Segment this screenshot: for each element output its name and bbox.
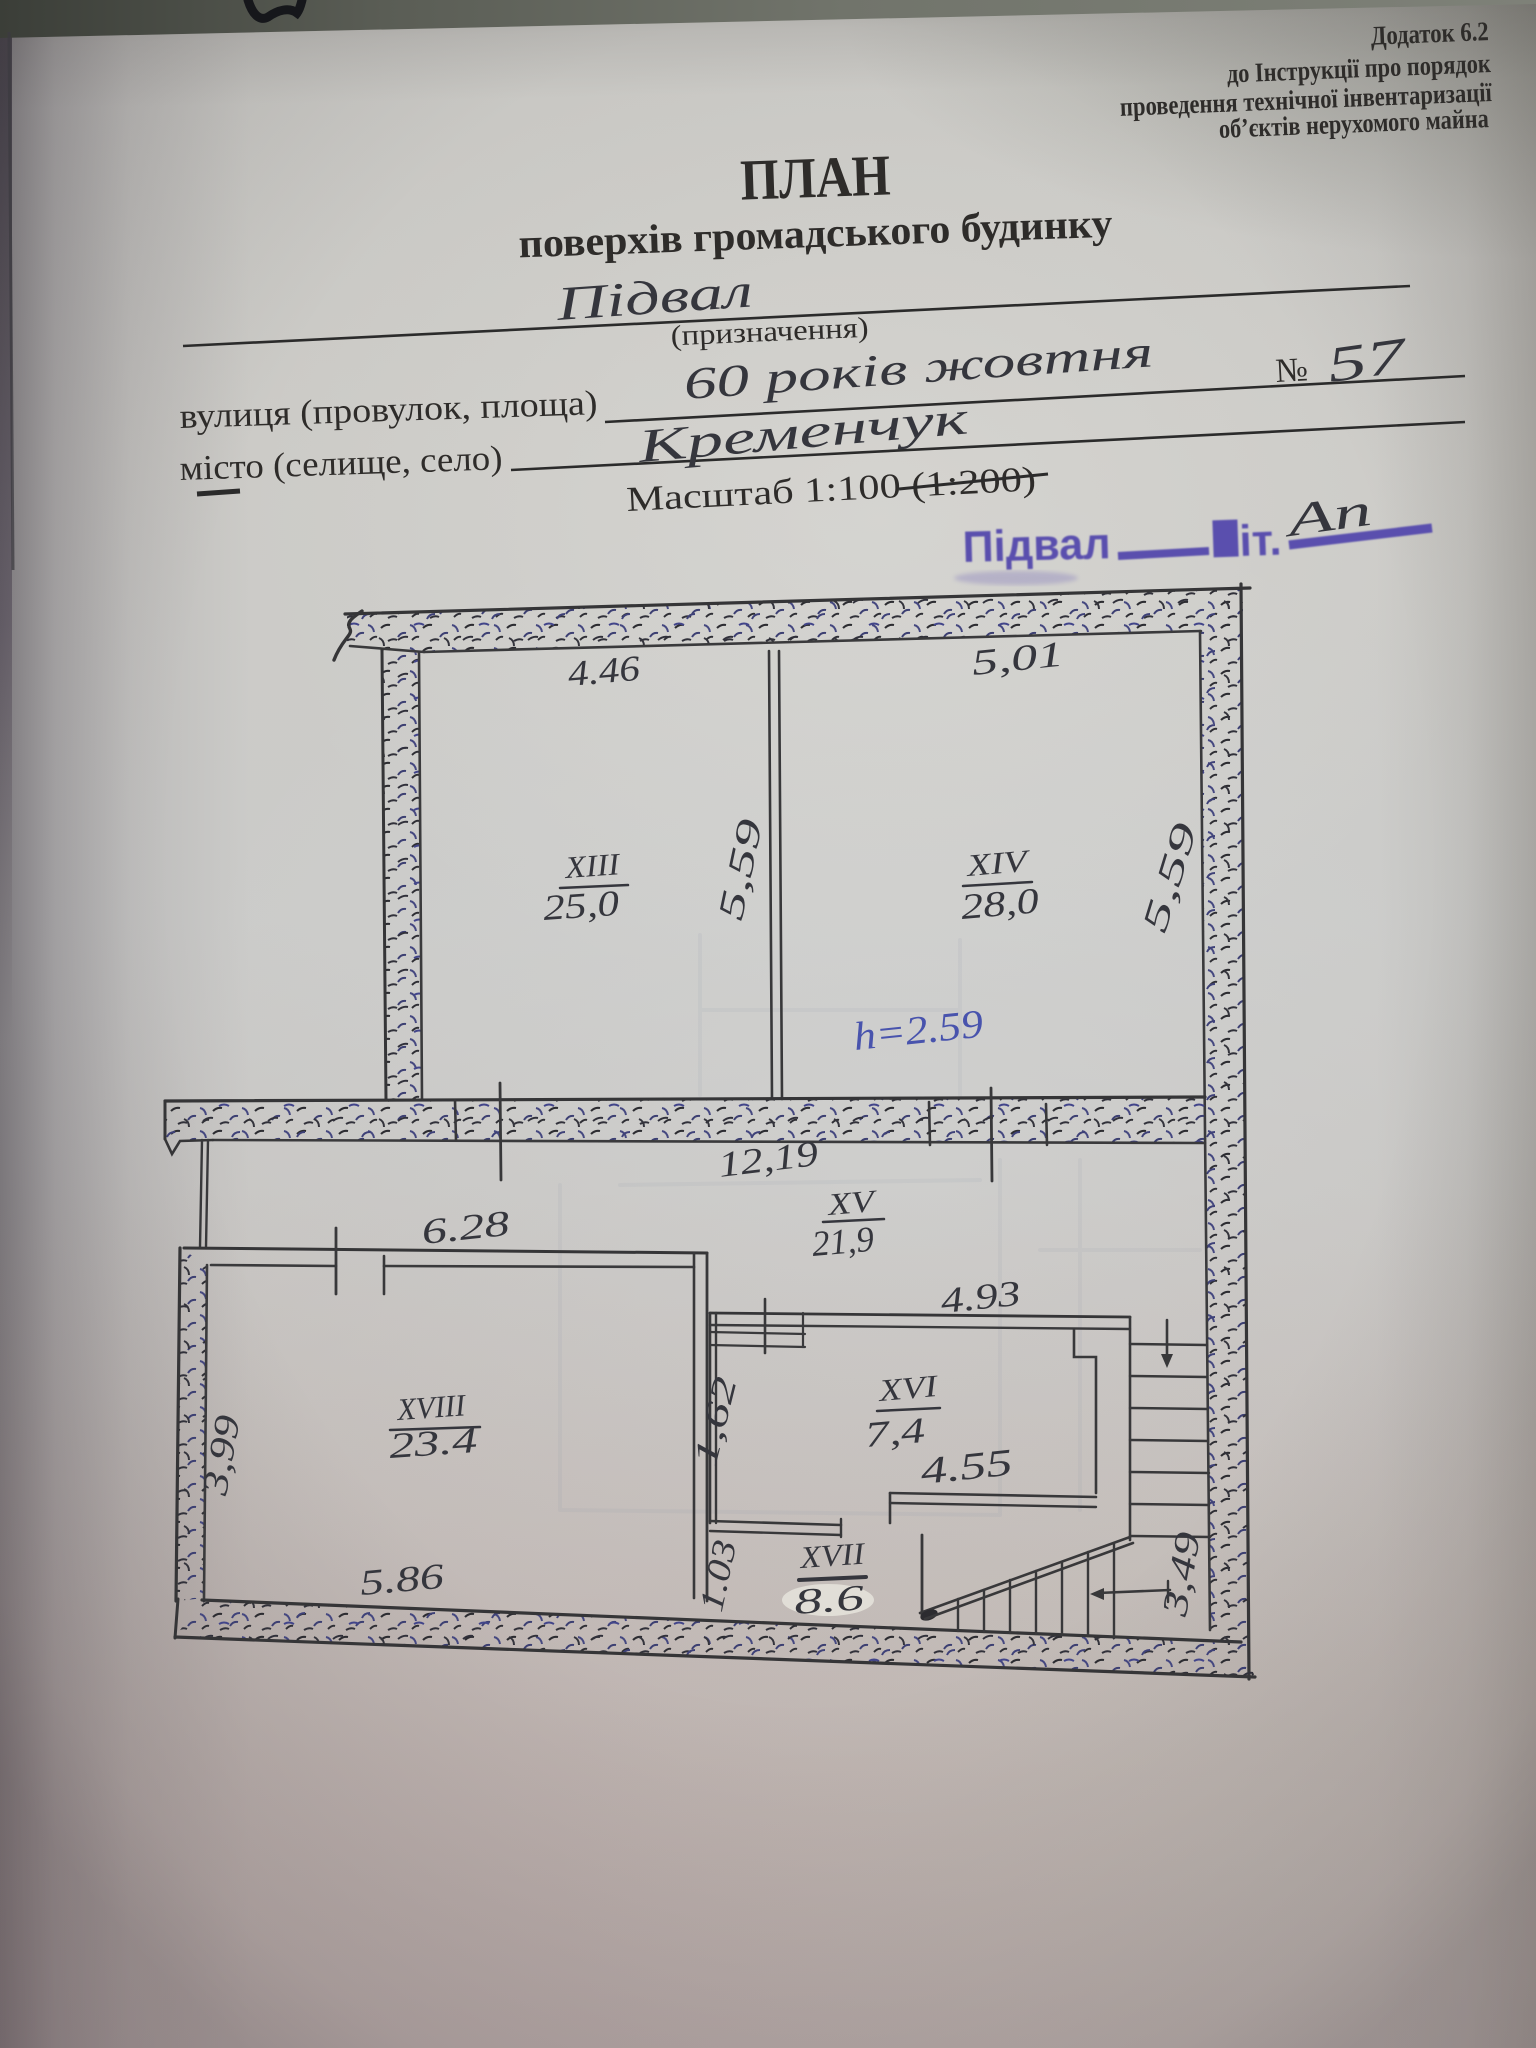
svg-text:XVI: XVI: [875, 1368, 940, 1408]
svg-text:вулиця (провулок, площа): вулиця (провулок, площа): [179, 383, 598, 436]
svg-text:ПЛАН: ПЛАН: [739, 142, 891, 212]
svg-text:7,4: 7,4: [863, 1410, 926, 1455]
svg-text:XIII: XIII: [562, 846, 622, 885]
svg-text:XV: XV: [824, 1183, 879, 1222]
svg-text:XVII: XVII: [797, 1535, 867, 1575]
svg-text:21,9: 21,9: [810, 1219, 875, 1264]
svg-text:місто (селище, село): місто (селище, село): [179, 438, 503, 488]
svg-text:5,01: 5,01: [970, 634, 1066, 683]
svg-text:Додаток 6.2: Додаток 6.2: [1370, 16, 1489, 51]
svg-text:5,59: 5,59: [1134, 818, 1205, 937]
svg-text:4.93: 4.93: [939, 1273, 1023, 1321]
svg-text:XIV: XIV: [963, 843, 1032, 884]
svg-text:8.6: 8.6: [793, 1577, 866, 1622]
svg-text:5.86: 5.86: [358, 1556, 445, 1603]
svg-text:28,0: 28,0: [959, 880, 1040, 927]
svg-text:3,49: 3,49: [1154, 1529, 1208, 1620]
svg-text:5,59: 5,59: [710, 815, 770, 923]
svg-text:поверхів громадського будинку: поверхів громадського будинку: [518, 200, 1114, 267]
svg-text:1.03: 1.03: [693, 1537, 744, 1615]
svg-text:57: 57: [1324, 326, 1412, 393]
svg-text:25,0: 25,0: [542, 883, 621, 928]
svg-text:№: №: [1274, 351, 1308, 390]
svg-text:4.46: 4.46: [566, 648, 641, 694]
svg-text:6.28: 6.28: [420, 1203, 512, 1252]
svg-text:23.4: 23.4: [388, 1420, 479, 1466]
svg-text:1,62: 1,62: [687, 1373, 745, 1469]
svg-text:Підвал: Підвал: [962, 519, 1111, 572]
svg-text:іт.: іт.: [1239, 516, 1283, 566]
